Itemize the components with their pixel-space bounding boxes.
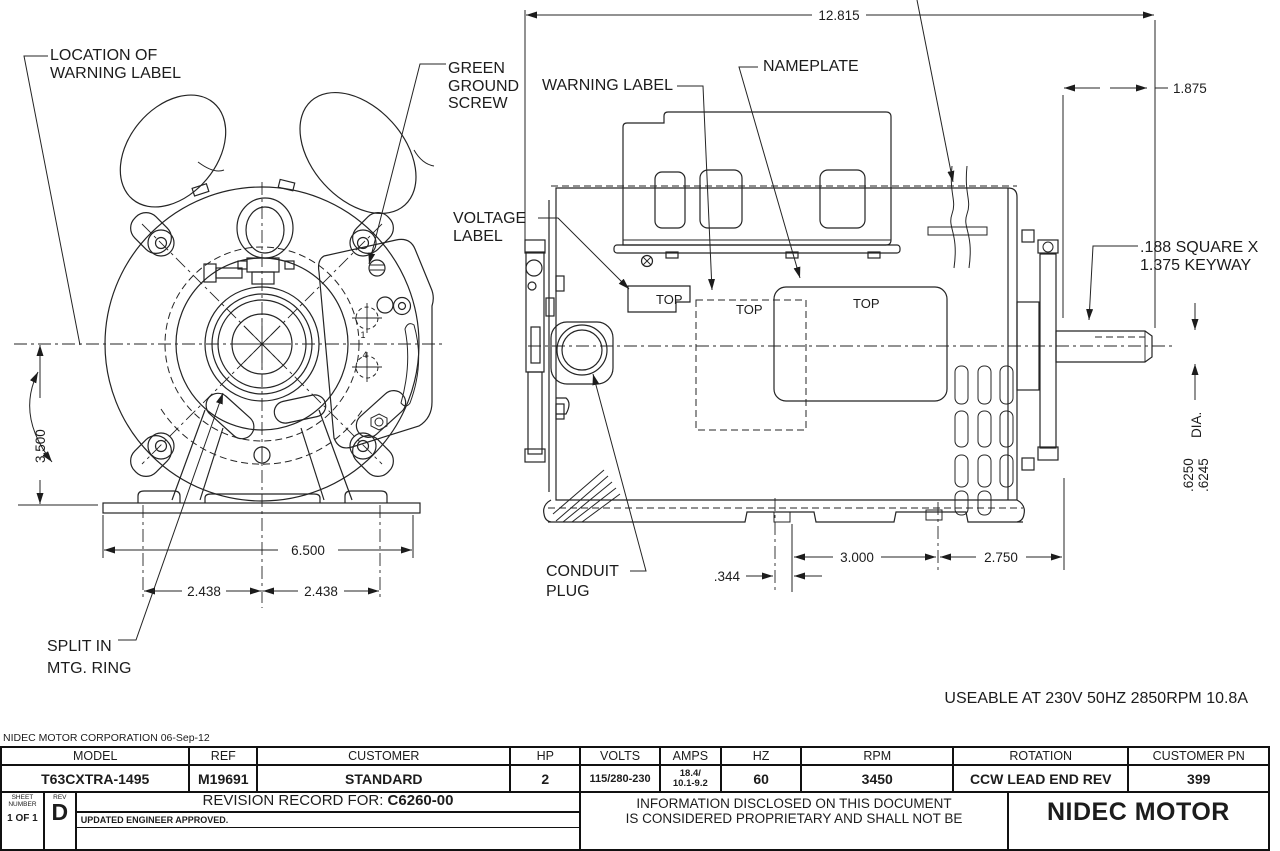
dim-height: 3.500 <box>33 429 48 463</box>
nameplate-label: NAMEPLATE <box>763 58 859 75</box>
keyway-note: .188 SQUARE X <box>1140 239 1259 256</box>
proprietary-line2: IS CONSIDERED PROPRIETARY AND SHALL NOT … <box>581 811 1007 826</box>
warning-location-label: LOCATION OF <box>50 47 157 64</box>
front-view-structure <box>99 70 439 513</box>
top-marking-nameplate: TOP <box>853 296 880 311</box>
revision-record-cell: REVISION RECORD FOR: C6260-00 UPDATED EN… <box>77 791 581 849</box>
value-hz: 60 <box>722 766 803 791</box>
useable-note: USEABLE AT 230V 50HZ 2850RPM 10.8A <box>944 690 1248 707</box>
top-marking-warning: TOP <box>736 302 763 317</box>
side-view-leaders <box>538 67 800 571</box>
revision-record-prefix: REVISION RECORD FOR: <box>203 792 388 809</box>
ground-screw-label: GREEN <box>448 60 505 77</box>
header-hp: HP <box>511 748 581 764</box>
header-customer-pn: CUSTOMER PN <box>1129 748 1268 764</box>
value-model: T63CXTRA-1495 <box>2 766 190 791</box>
header-volts: VOLTS <box>581 748 661 764</box>
dim-base-width: 6.500 <box>291 543 325 558</box>
split-ring-label-2: MTG. RING <box>47 660 131 677</box>
sheet-value: 1 OF 1 <box>2 813 43 824</box>
dim-shaft-dia-min: .6245 <box>1196 458 1211 492</box>
voltage-label: VOLTAGE <box>453 210 526 227</box>
warning-label: WARNING LABEL <box>542 77 673 94</box>
value-customer-pn: 399 <box>1129 766 1268 791</box>
dim-conduit-offset: .344 <box>714 569 741 584</box>
value-ref: M19691 <box>190 766 258 791</box>
brand-logo-text: NIDEC MOTOR <box>1009 791 1268 849</box>
dim-foot-spacing: 3.000 <box>840 550 874 565</box>
header-amps: AMPS <box>661 748 722 764</box>
header-rotation: ROTATION <box>954 748 1129 764</box>
sheet-label: SHEET NUMBER <box>2 794 43 808</box>
header-customer: CUSTOMER <box>258 748 511 764</box>
header-model: MODEL <box>2 748 190 764</box>
conduit-plug-label-2: PLUG <box>546 583 590 600</box>
title-block-bottom: SHEET NUMBER 1 OF 1 REV D REVISION RECOR… <box>0 791 1270 851</box>
sheet-label-line1: SHEET <box>2 794 43 801</box>
side-view-structure <box>525 112 1152 522</box>
dim-shaft-length: 1.875 <box>1173 81 1207 96</box>
dim-foot-to-shoulder: 2.750 <box>984 550 1018 565</box>
dim-foot-left: 2.438 <box>187 584 221 599</box>
sheet-number-cell: SHEET NUMBER 1 OF 1 <box>2 791 45 849</box>
value-customer: STANDARD <box>258 766 511 791</box>
side-view-texts: WARNING LABEL NAMEPLATE VOLTAGE LABEL CO… <box>453 8 1259 707</box>
value-volts: 115/280-230 <box>581 766 661 791</box>
header-hz: HZ <box>722 748 803 764</box>
dim-foot-right: 2.438 <box>304 584 338 599</box>
rev-cell: REV D <box>45 791 77 849</box>
terminal-mark-4: 4 <box>362 350 367 360</box>
dim-overall-length: 12.815 <box>818 8 859 23</box>
value-amps-line1: 18.4/ <box>680 769 701 779</box>
revision-record-number: C6260-00 <box>388 792 454 809</box>
spec-value-row: T63CXTRA-1495 M19691 STANDARD 2 115/280-… <box>2 766 1268 791</box>
dia-label: DIA. <box>1189 412 1204 438</box>
proprietary-line1: INFORMATION DISCLOSED ON THIS DOCUMENT <box>581 796 1007 811</box>
warning-location-label-2: WARNING LABEL <box>50 65 181 82</box>
value-rpm: 3450 <box>802 766 954 791</box>
revision-record-note: UPDATED ENGINEER APPROVED. <box>77 813 579 828</box>
proprietary-notice: INFORMATION DISCLOSED ON THIS DOCUMENT I… <box>581 791 1009 849</box>
spec-table: MODEL REF CUSTOMER HP VOLTS AMPS HZ RPM … <box>0 746 1270 793</box>
value-amps: 18.4/ 10.1-9.2 <box>661 766 722 791</box>
dim-shaft-dia-max: .6250 <box>1181 458 1196 492</box>
header-rpm: RPM <box>802 748 954 764</box>
corporation-line: NIDEC MOTOR CORPORATION 06-Sep-12 <box>3 732 210 744</box>
value-rotation: CCW LEAD END REV <box>954 766 1129 791</box>
ground-screw-label-2: GROUND <box>448 78 519 95</box>
revision-record-title: REVISION RECORD FOR: C6260-00 <box>77 791 579 813</box>
value-hp: 2 <box>511 766 581 791</box>
voltage-label-2: LABEL <box>453 228 503 245</box>
split-ring-label: SPLIT IN <box>47 638 112 655</box>
header-ref: REF <box>190 748 258 764</box>
engineering-drawing: LOCATION OF WARNING LABEL GREEN GROUND S… <box>0 0 1280 732</box>
terminal-mark-1: 1 <box>360 330 365 340</box>
conduit-plug-label: CONDUIT <box>546 563 619 580</box>
ground-screw-label-3: SCREW <box>448 95 508 112</box>
rev-value: D <box>45 801 75 823</box>
keyway-note-2: 1.375 KEYWAY <box>1140 257 1251 274</box>
value-amps-line2: 10.1-9.2 <box>673 779 708 789</box>
sheet-label-line2: NUMBER <box>2 801 43 808</box>
top-marking-voltage: TOP <box>656 292 683 307</box>
spec-header-row: MODEL REF CUSTOMER HP VOLTS AMPS HZ RPM … <box>2 748 1268 766</box>
